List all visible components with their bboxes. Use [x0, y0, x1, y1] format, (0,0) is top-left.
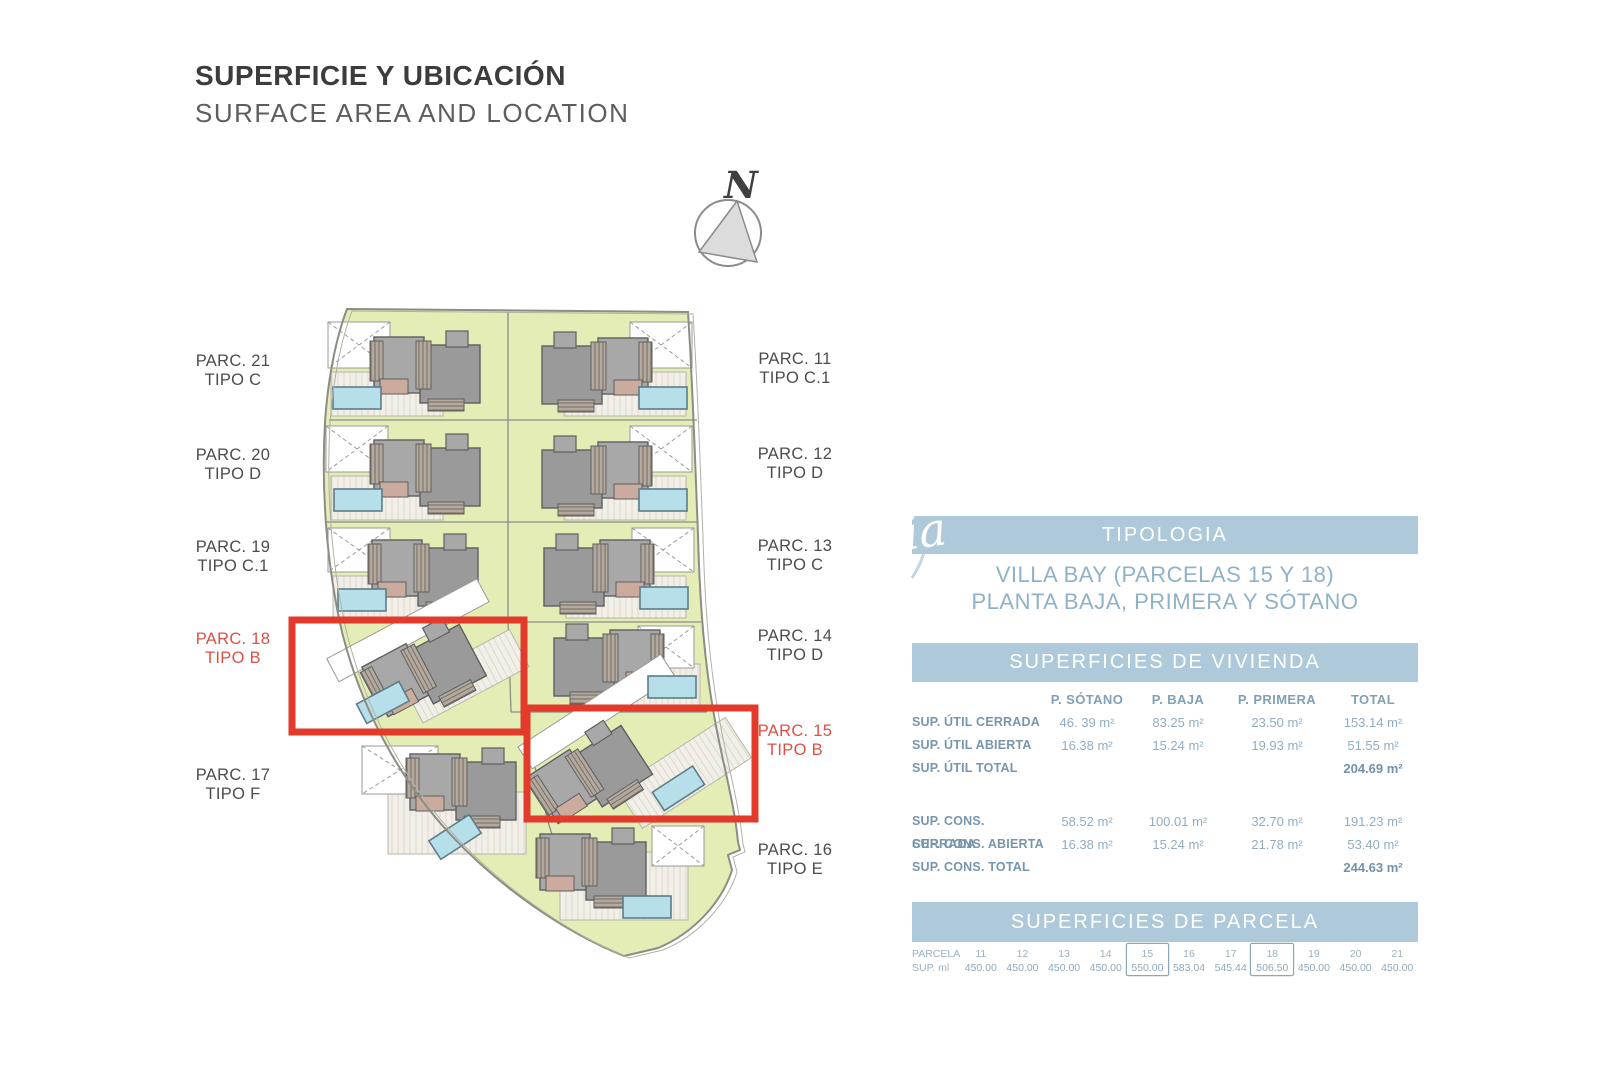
compass-north-arrow: N [695, 163, 761, 266]
vivienda-header-bar: SUPERFICIES DE VIVIENDA [912, 643, 1418, 682]
parcela-cell-11: 11450.00 [960, 944, 1002, 975]
cell-value [1044, 856, 1130, 879]
row-label: SUP. ÚTIL CERRADA [912, 711, 1044, 734]
parcel-label-15: PARC. 15TIPO B [740, 722, 850, 760]
row-label: SUP. ÚTIL ABIERTA [912, 734, 1044, 757]
col-header-sotano: P. SÓTANO [1044, 690, 1130, 711]
parcela-cell-16: 16583.04 [1168, 944, 1210, 975]
compass-n-letter: N [723, 163, 759, 207]
parcel-label-18: PARC. 18TIPO B [178, 630, 288, 668]
cell-value [1226, 757, 1328, 780]
parcel-label-11: PARC. 11TIPO C.1 [740, 350, 850, 388]
cell-value: 191.23 m² [1328, 810, 1418, 833]
parcel-label-21: PARC. 21TIPO C [178, 352, 288, 390]
watermark-script: ia [900, 501, 949, 560]
cell-value [1044, 757, 1130, 780]
parcela-cell-21: 21450.00 [1376, 944, 1418, 975]
cell-value: 15.24 m² [1130, 833, 1226, 856]
tipologia-line1: VILLA BAY (PARCELAS 15 Y 18) [912, 561, 1418, 588]
parcela-cell-19: 19450.00 [1293, 944, 1335, 975]
row-label: SUP. CONS. TOTAL [912, 856, 1044, 879]
cell-value: 23.50 m² [1226, 711, 1328, 734]
cell-value: 32.70 m² [1226, 810, 1328, 833]
cell-value [1130, 757, 1226, 780]
row-label: SUP. CONS. ABIERTA [912, 833, 1044, 856]
cell-value: 51.55 m² [1328, 734, 1418, 757]
parcela-cell-20: 20450.00 [1335, 944, 1377, 975]
parcel-label-14: PARC. 14TIPO D [740, 627, 850, 665]
row-label: SUP. ÚTIL TOTAL [912, 757, 1044, 780]
tipologia-line2: PLANTA BAJA, PRIMERA Y SÓTANO [912, 588, 1418, 615]
sup-ml-label: SUP. ml [912, 962, 949, 974]
cell-value [1130, 856, 1226, 879]
cell-value-total: 204.69 m² [1328, 757, 1418, 780]
parcel-label-20: PARC. 20TIPO D [178, 446, 288, 484]
parcel-label-19: PARC. 19TIPO C.1 [178, 538, 288, 576]
parcel-label-16: PARC. 16TIPO E [740, 841, 850, 879]
table-gap [912, 780, 1418, 810]
parcela-cell-12: 12450.00 [1002, 944, 1044, 975]
cell-value: 100.01 m² [1130, 810, 1226, 833]
col-header-total: TOTAL [1328, 690, 1418, 711]
parcel-label-12: PARC. 12TIPO D [740, 445, 850, 483]
parcela-cell-15-highlighted: 15550.00 [1127, 944, 1169, 975]
parcel-label-17: PARC. 17TIPO F [178, 766, 288, 804]
parcela-cell-13: 13450.00 [1043, 944, 1085, 975]
cell-value: 153.14 m² [1328, 711, 1418, 734]
parcela-label: PARCELA [912, 948, 960, 960]
col-header-baja: P. BAJA [1130, 690, 1226, 711]
col-header-empty [912, 690, 1044, 711]
col-header-primera: P. PRIMERA [1226, 690, 1328, 711]
tipologia-subtitle: VILLA BAY (PARCELAS 15 Y 18) PLANTA BAJA… [912, 561, 1418, 615]
parcel-label-13: PARC. 13TIPO C [740, 537, 850, 575]
parcela-row-labels: PARCELA SUP. ml [912, 944, 960, 975]
parcela-cell-18-highlighted: 18506.50 [1251, 944, 1293, 975]
cell-value: 16.38 m² [1044, 734, 1130, 757]
row-label: SUP. CONS. CERRADA [912, 810, 1044, 833]
cell-value: 15.24 m² [1130, 734, 1226, 757]
cell-value-total: 244.63 m² [1328, 856, 1418, 879]
cell-value: 46. 39 m² [1044, 711, 1130, 734]
cell-value: 16.38 m² [1044, 833, 1130, 856]
parcela-cell-14: 14450.00 [1085, 944, 1127, 975]
vivienda-table: P. SÓTANO P. BAJA P. PRIMERA TOTAL SUP. … [912, 690, 1418, 879]
cell-value: 58.52 m² [1044, 810, 1130, 833]
cell-value: 83.25 m² [1130, 711, 1226, 734]
parcela-table: PARCELA SUP. ml 11450.00 12450.00 13450.… [912, 944, 1418, 975]
cell-value [1226, 856, 1328, 879]
cell-value: 19.93 m² [1226, 734, 1328, 757]
cell-value: 53.40 m² [1328, 833, 1418, 856]
cell-value: 21.78 m² [1226, 833, 1328, 856]
tipologia-header-bar: TIPOLOGIA [912, 516, 1418, 554]
parcela-cell-17: 17545.44 [1210, 944, 1252, 975]
parcela-header-bar: SUPERFICIES DE PARCELA [912, 902, 1418, 942]
